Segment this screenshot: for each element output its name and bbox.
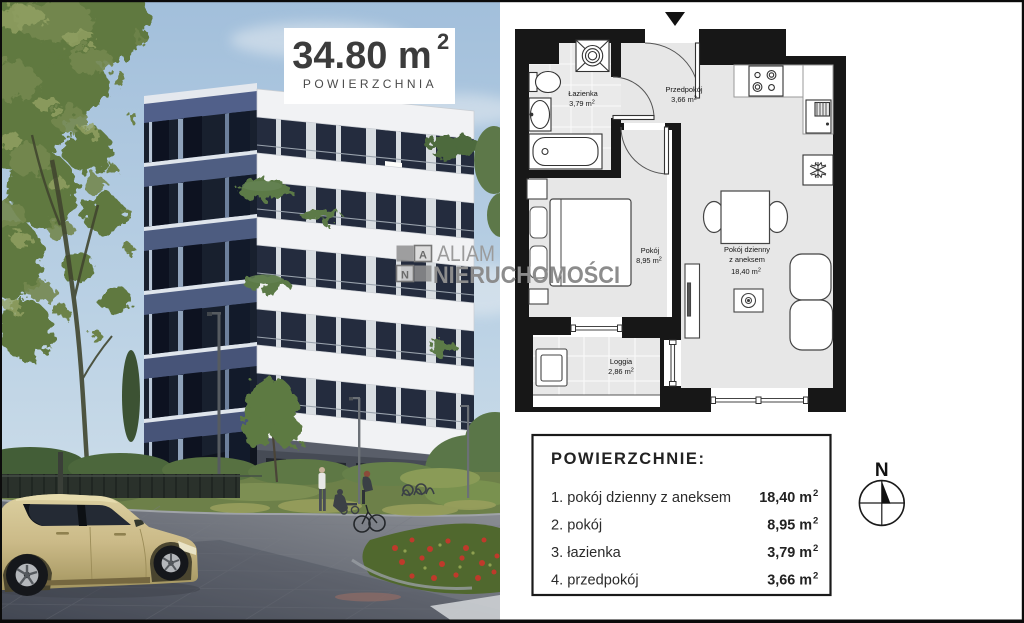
svg-text:A: A (419, 250, 427, 262)
svg-text:8,95 m2: 8,95 m2 (636, 256, 662, 265)
svg-text:3,79 m2: 3,79 m2 (569, 99, 595, 108)
svg-text:8,95 m: 8,95 m (767, 518, 812, 534)
svg-text:2. pokój: 2. pokój (551, 518, 602, 534)
svg-text:z aneksem: z aneksem (729, 255, 765, 264)
svg-text:3. łazienka: 3. łazienka (551, 545, 622, 561)
svg-text:3,66 m: 3,66 m (767, 573, 812, 589)
svg-text:N: N (401, 270, 409, 282)
svg-text:18,40 m: 18,40 m (759, 490, 812, 506)
svg-text:2: 2 (813, 571, 818, 582)
svg-text:18,40 m2: 18,40 m2 (731, 267, 761, 276)
svg-text:2: 2 (813, 543, 818, 554)
svg-text:2: 2 (813, 488, 818, 499)
svg-text:POWIERZCHNIA: POWIERZCHNIA (303, 77, 437, 91)
svg-text:POWIERZCHNIE:: POWIERZCHNIE: (551, 450, 706, 468)
svg-text:Pokój dzienny: Pokój dzienny (724, 245, 770, 254)
svg-text:Łazienka: Łazienka (568, 89, 598, 98)
svg-text:3,66 m2: 3,66 m2 (671, 95, 697, 104)
svg-text:2,86 m2: 2,86 m2 (608, 367, 634, 376)
svg-text:Pokój: Pokój (641, 246, 660, 255)
svg-text:1. pokój dzienny z aneksem: 1. pokój dzienny z aneksem (551, 490, 731, 506)
svg-text:34.80 m: 34.80 m (292, 35, 431, 77)
svg-text:3,79 m: 3,79 m (767, 545, 812, 561)
svg-text:N: N (875, 460, 889, 481)
svg-text:Loggia: Loggia (610, 357, 633, 366)
svg-text:Przedpokój: Przedpokój (666, 85, 703, 94)
svg-text:NIERUCHOMOŚCI: NIERUCHOMOŚCI (433, 261, 620, 289)
svg-text:2: 2 (437, 29, 449, 54)
svg-text:4. przedpokój: 4. przedpokój (551, 573, 639, 589)
svg-text:2: 2 (813, 516, 818, 527)
